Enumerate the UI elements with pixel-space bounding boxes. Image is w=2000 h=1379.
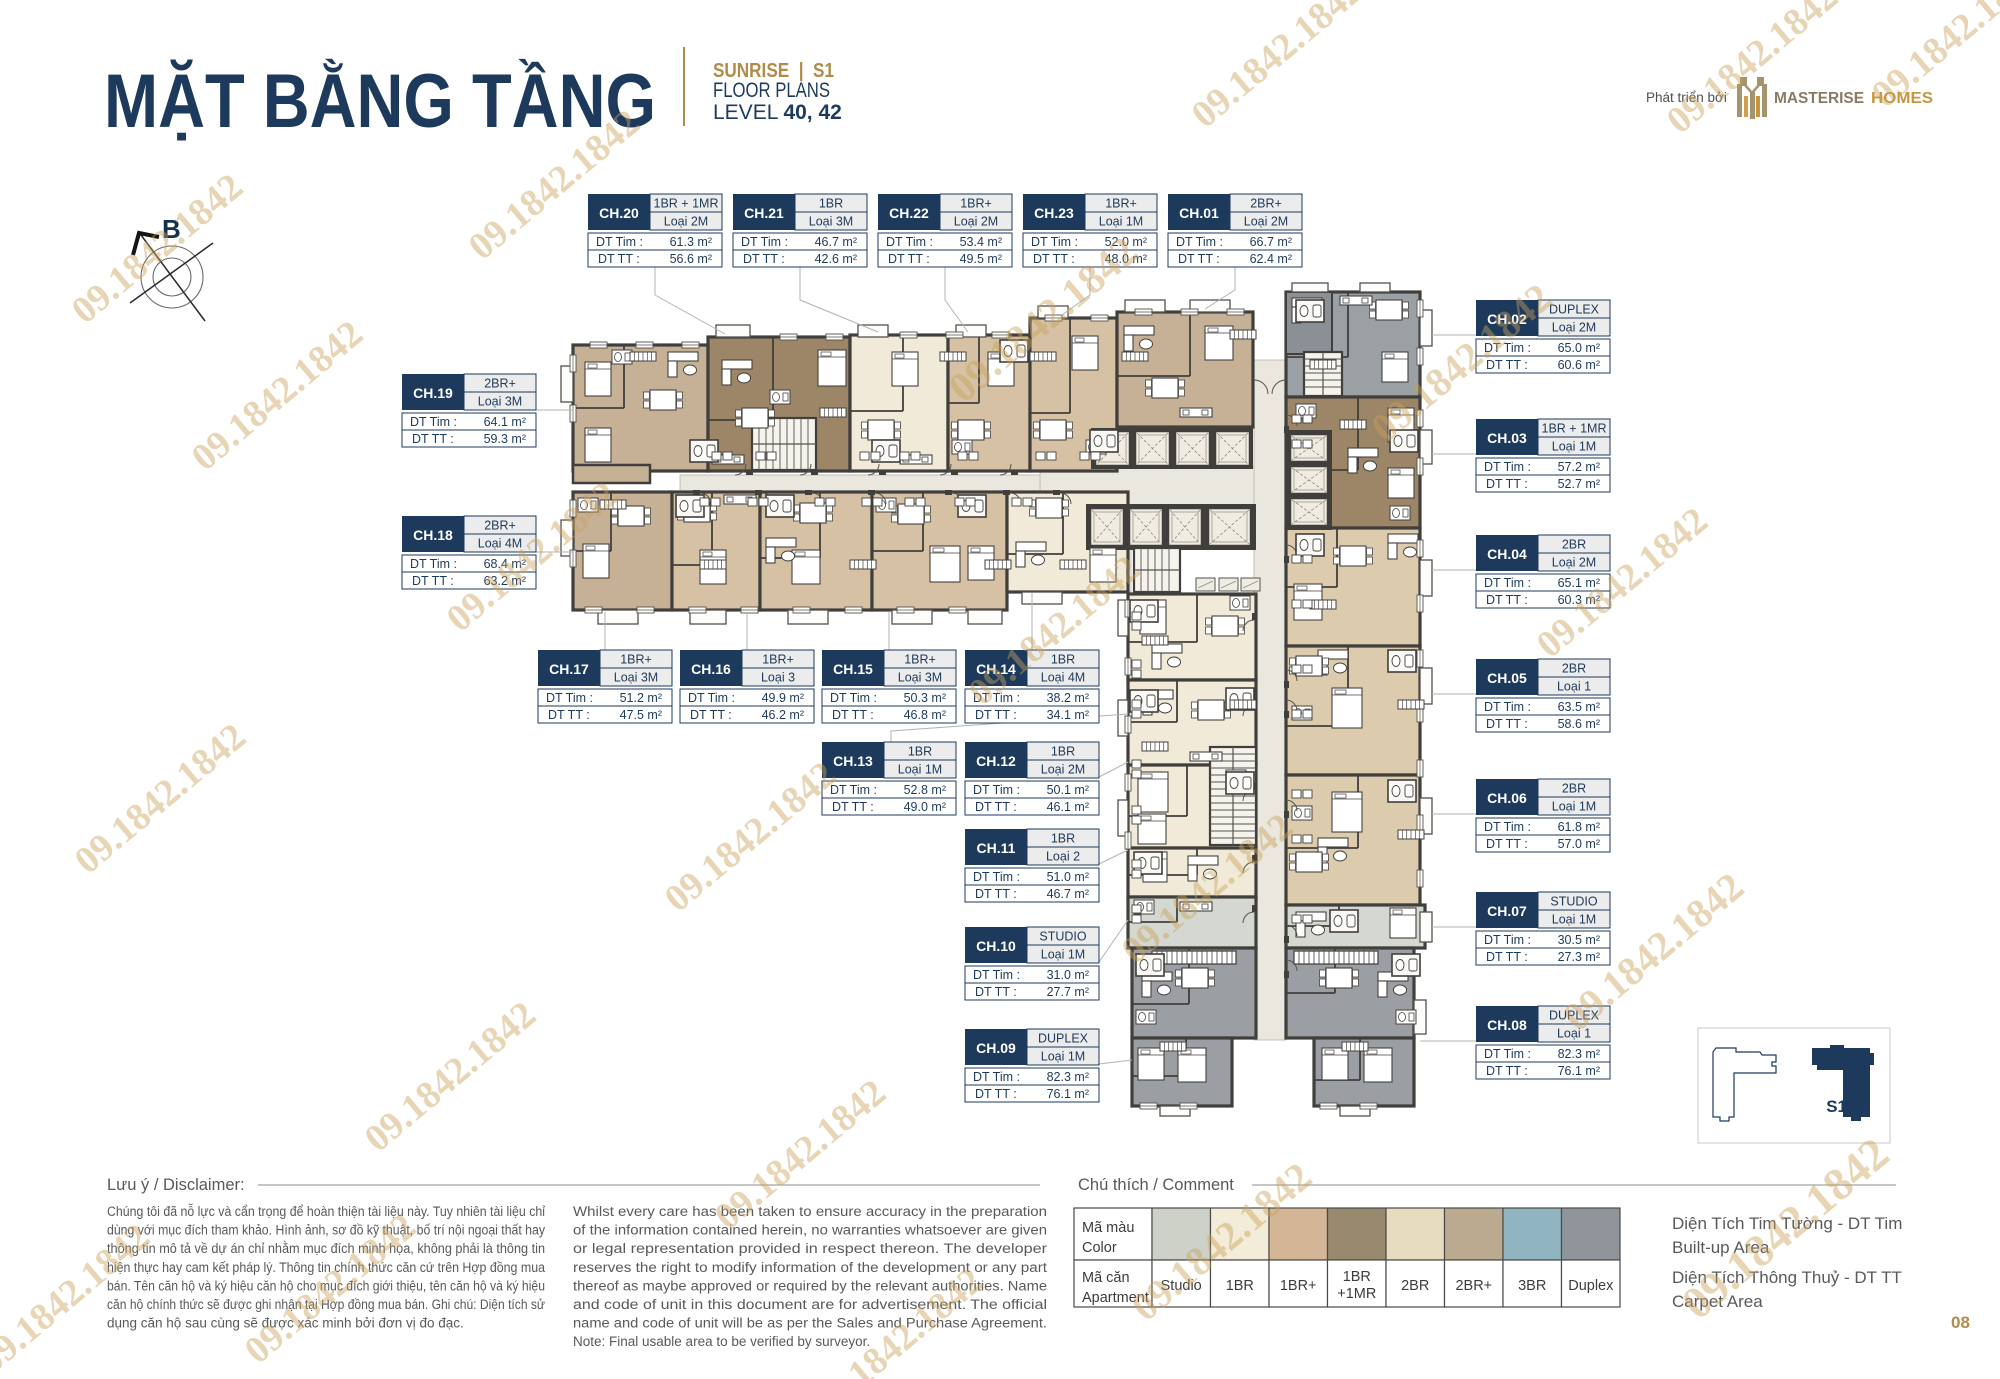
svg-text:Loại 3: Loại 3	[761, 671, 795, 685]
svg-text:Color: Color	[1082, 1240, 1117, 1256]
svg-text:CH.21: CH.21	[744, 205, 784, 221]
svg-text:CH.13: CH.13	[833, 753, 873, 769]
svg-text:66.7 m²: 66.7 m²	[1250, 235, 1292, 249]
svg-text:46.2 m²: 46.2 m²	[762, 708, 804, 722]
svg-text:Loại 1M: Loại 1M	[898, 763, 942, 777]
svg-text:DT TT :: DT TT :	[1486, 837, 1528, 851]
svg-text:Loại 2M: Loại 2M	[954, 215, 998, 229]
svg-text:Loại 3M: Loại 3M	[898, 671, 942, 685]
svg-text:STUDIO: STUDIO	[1550, 895, 1598, 909]
svg-text:Loại 2: Loại 2	[1046, 850, 1080, 864]
svg-text:CH.03: CH.03	[1487, 430, 1527, 446]
svg-text:2BR+: 2BR+	[484, 519, 516, 533]
svg-text:CH.12: CH.12	[976, 753, 1016, 769]
svg-text:61.3 m²: 61.3 m²	[670, 235, 712, 249]
svg-text:31.0 m²: 31.0 m²	[1047, 968, 1089, 982]
svg-text:DT TT :: DT TT :	[832, 800, 874, 814]
svg-text:DT Tim :: DT Tim :	[1484, 460, 1531, 474]
svg-text:DT Tim :: DT Tim :	[1176, 235, 1223, 249]
svg-text:DT TT :: DT TT :	[412, 432, 454, 446]
svg-text:Chúng tôi đã nỗ lực và cẩn trọ: Chúng tôi đã nỗ lực và cẩn trọng để hoàn…	[107, 1204, 545, 1219]
svg-text:Loại 2M: Loại 2M	[1552, 556, 1596, 570]
svg-text:Loại 1M: Loại 1M	[1099, 215, 1143, 229]
svg-text:1BR+: 1BR+	[620, 653, 652, 667]
svg-text:DT TT :: DT TT :	[1486, 1064, 1528, 1078]
svg-text:64.1 m²: 64.1 m²	[484, 415, 526, 429]
svg-text:63.5 m²: 63.5 m²	[1558, 700, 1600, 714]
svg-text:Loại 2M: Loại 2M	[1552, 321, 1596, 335]
svg-text:DT TT :: DT TT :	[1486, 477, 1528, 491]
svg-text:CH.17: CH.17	[549, 661, 589, 677]
svg-text:46.7 m²: 46.7 m²	[815, 235, 857, 249]
svg-text:name and code of unit will be: name and code of unit will be as per the…	[573, 1316, 1047, 1331]
svg-text:08: 08	[1951, 1313, 1970, 1332]
svg-text:DT TT :: DT TT :	[888, 252, 930, 266]
svg-text:DT TT :: DT TT :	[1486, 717, 1528, 731]
svg-text:61.8 m²: 61.8 m²	[1558, 820, 1600, 834]
svg-text:Loại 1M: Loại 1M	[1041, 1050, 1085, 1064]
svg-text:1BR+: 1BR+	[904, 653, 936, 667]
svg-text:Loại 2M: Loại 2M	[1244, 215, 1288, 229]
svg-text:49.9 m²: 49.9 m²	[762, 691, 804, 705]
svg-text:50.3 m²: 50.3 m²	[904, 691, 946, 705]
svg-text:DT TT :: DT TT :	[1033, 252, 1075, 266]
svg-text:STUDIO: STUDIO	[1039, 930, 1087, 944]
svg-text:46.8 m²: 46.8 m²	[904, 708, 946, 722]
svg-text:DT TT :: DT TT :	[690, 708, 732, 722]
svg-text:dùng với mục đích tham khảo. H: dùng với mục đích tham khảo. Hình ảnh, s…	[107, 1223, 545, 1238]
svg-text:DT TT :: DT TT :	[975, 985, 1017, 999]
svg-text:CH.16: CH.16	[691, 661, 731, 677]
svg-text:DT TT :: DT TT :	[975, 708, 1017, 722]
svg-text:CH.09: CH.09	[976, 1040, 1016, 1056]
svg-text:Duplex: Duplex	[1568, 1278, 1614, 1294]
svg-text:3BR: 3BR	[1518, 1278, 1546, 1294]
svg-text:51.0 m²: 51.0 m²	[1047, 870, 1089, 884]
svg-text:DT Tim :: DT Tim :	[830, 691, 877, 705]
svg-text:CH.08: CH.08	[1487, 1017, 1527, 1033]
svg-text:DUPLEX: DUPLEX	[1038, 1032, 1089, 1046]
svg-text:MẶT BẰNG TẦNG: MẶT BẰNG TẦNG	[104, 59, 656, 144]
svg-text:+1MR: +1MR	[1337, 1286, 1376, 1302]
svg-text:DT Tim :: DT Tim :	[1031, 235, 1078, 249]
svg-text:DT Tim :: DT Tim :	[886, 235, 933, 249]
svg-text:CH.15: CH.15	[833, 661, 873, 677]
svg-text:65.0 m²: 65.0 m²	[1558, 341, 1600, 355]
svg-text:DT Tim :: DT Tim :	[1484, 576, 1531, 590]
svg-text:Loại 1M: Loại 1M	[1552, 913, 1596, 927]
svg-text:Note: Final usable area to be: Note: Final usable area to be verified b…	[573, 1334, 870, 1349]
svg-text:DT TT :: DT TT :	[975, 887, 1017, 901]
svg-text:2BR+: 2BR+	[484, 377, 516, 391]
svg-text:DT Tim :: DT Tim :	[1484, 933, 1531, 947]
svg-text:DT TT :: DT TT :	[1178, 252, 1220, 266]
svg-text:DT TT :: DT TT :	[412, 574, 454, 588]
svg-text:Loại 1: Loại 1	[1557, 680, 1591, 694]
svg-text:62.4 m²: 62.4 m²	[1250, 252, 1292, 266]
svg-text:Loại 3M: Loại 3M	[614, 671, 658, 685]
svg-text:DT TT :: DT TT :	[832, 708, 874, 722]
svg-text:27.7 m²: 27.7 m²	[1047, 985, 1089, 999]
svg-text:38.2 m²: 38.2 m²	[1047, 691, 1089, 705]
svg-text:DT Tim :: DT Tim :	[546, 691, 593, 705]
svg-text:DT TT :: DT TT :	[548, 708, 590, 722]
svg-text:CH.23: CH.23	[1034, 205, 1074, 221]
svg-text:DT Tim :: DT Tim :	[410, 415, 457, 429]
svg-text:reserves the right to modify i: reserves the right to modify information…	[573, 1260, 1047, 1275]
svg-text:Whilst every care has been tak: Whilst every care has been taken to ensu…	[573, 1204, 1047, 1219]
svg-text:DT Tim :: DT Tim :	[596, 235, 643, 249]
svg-text:Loại 2M: Loại 2M	[664, 215, 708, 229]
svg-text:Lưu ý / Disclaimer:: Lưu ý / Disclaimer:	[107, 1176, 245, 1194]
svg-text:DT Tim :: DT Tim :	[973, 968, 1020, 982]
svg-text:LEVEL 40, 42: LEVEL 40, 42	[713, 101, 842, 124]
svg-text:1BR+: 1BR+	[1280, 1278, 1317, 1294]
svg-text:DT Tim :: DT Tim :	[1484, 820, 1531, 834]
svg-text:DT TT :: DT TT :	[975, 1087, 1017, 1101]
svg-text:DT TT :: DT TT :	[1486, 950, 1528, 964]
svg-text:CH.01: CH.01	[1179, 205, 1219, 221]
svg-text:51.2 m²: 51.2 m²	[620, 691, 662, 705]
svg-text:FLOOR PLANS: FLOOR PLANS	[713, 79, 830, 102]
svg-text:1BR: 1BR	[819, 197, 843, 211]
svg-text:DT TT :: DT TT :	[598, 252, 640, 266]
svg-text:76.1 m²: 76.1 m²	[1558, 1064, 1600, 1078]
svg-text:1BR: 1BR	[1343, 1269, 1371, 1285]
svg-text:53.4 m²: 53.4 m²	[960, 235, 1002, 249]
svg-text:CH.22: CH.22	[889, 205, 929, 221]
svg-text:Loại 1M: Loại 1M	[1041, 948, 1085, 962]
svg-text:58.6 m²: 58.6 m²	[1558, 717, 1600, 731]
svg-text:1BR: 1BR	[908, 745, 932, 759]
svg-text:Loại 1M: Loại 1M	[1552, 800, 1596, 814]
svg-text:DT TT :: DT TT :	[975, 800, 1017, 814]
svg-text:52.8 m²: 52.8 m²	[904, 783, 946, 797]
svg-text:49.0 m²: 49.0 m²	[904, 800, 946, 814]
svg-text:DT Tim :: DT Tim :	[741, 235, 788, 249]
svg-text:Loại 3M: Loại 3M	[809, 215, 853, 229]
svg-text:DT Tim :: DT Tim :	[973, 783, 1020, 797]
svg-text:1BR+: 1BR+	[960, 197, 992, 211]
svg-text:Mã căn: Mã căn	[1082, 1270, 1130, 1286]
svg-text:27.3 m²: 27.3 m²	[1558, 950, 1600, 964]
svg-text:59.3 m²: 59.3 m²	[484, 432, 526, 446]
svg-text:2BR+: 2BR+	[1455, 1278, 1492, 1294]
svg-text:CH.10: CH.10	[976, 938, 1016, 954]
svg-text:CH.18: CH.18	[413, 527, 453, 543]
svg-text:2BR: 2BR	[1562, 538, 1586, 552]
svg-text:of the information contained h: of the information contained herein, no …	[573, 1223, 1047, 1238]
svg-text:DT Tim :: DT Tim :	[973, 870, 1020, 884]
svg-text:Loại 4M: Loại 4M	[1041, 671, 1085, 685]
svg-text:30.5 m²: 30.5 m²	[1558, 933, 1600, 947]
svg-text:DT Tim :: DT Tim :	[410, 557, 457, 571]
svg-text:2BR: 2BR	[1562, 662, 1586, 676]
svg-text:MASTERISE: MASTERISE	[1774, 90, 1864, 107]
svg-text:82.3 m²: 82.3 m²	[1047, 1070, 1089, 1084]
svg-text:42.6 m²: 42.6 m²	[815, 252, 857, 266]
svg-text:thông tin mô tả về dự án chỉ n: thông tin mô tả về dự án chỉ nhằm mục đí…	[107, 1241, 545, 1256]
svg-text:46.7 m²: 46.7 m²	[1047, 887, 1089, 901]
svg-text:56.6 m²: 56.6 m²	[670, 252, 712, 266]
svg-text:1BR+: 1BR+	[762, 653, 794, 667]
svg-text:CH.05: CH.05	[1487, 670, 1527, 686]
svg-text:1BR: 1BR	[1051, 832, 1075, 846]
svg-text:2BR: 2BR	[1562, 782, 1586, 796]
svg-text:1BR: 1BR	[1051, 745, 1075, 759]
svg-text:DT TT :: DT TT :	[743, 252, 785, 266]
svg-text:CH.11: CH.11	[977, 840, 1016, 856]
svg-text:Chú thích / Comment: Chú thích / Comment	[1078, 1176, 1234, 1194]
svg-text:DT Tim :: DT Tim :	[973, 1070, 1020, 1084]
svg-text:46.1 m²: 46.1 m²	[1047, 800, 1089, 814]
svg-text:1BR + 1MR: 1BR + 1MR	[654, 197, 719, 211]
svg-text:57.0 m²: 57.0 m²	[1558, 837, 1600, 851]
svg-text:Loại 2M: Loại 2M	[1041, 763, 1085, 777]
svg-text:76.1 m²: 76.1 m²	[1047, 1087, 1089, 1101]
svg-text:DT Tim :: DT Tim :	[688, 691, 735, 705]
svg-text:CH.20: CH.20	[599, 205, 639, 221]
svg-text:DT Tim :: DT Tim :	[1484, 1047, 1531, 1061]
svg-text:1BR + 1MR: 1BR + 1MR	[1542, 422, 1607, 436]
svg-text:52.7 m²: 52.7 m²	[1558, 477, 1600, 491]
svg-text:60.6 m²: 60.6 m²	[1558, 358, 1600, 372]
svg-text:Mã màu: Mã màu	[1082, 1220, 1134, 1236]
svg-text:1BR+: 1BR+	[1105, 197, 1137, 211]
svg-text:Loại 1M: Loại 1M	[1552, 440, 1596, 454]
svg-text:1BR: 1BR	[1226, 1278, 1254, 1294]
svg-text:2BR+: 2BR+	[1250, 197, 1282, 211]
svg-text:CH.06: CH.06	[1487, 790, 1527, 806]
svg-text:DT TT :: DT TT :	[1486, 593, 1528, 607]
svg-text:Loại 3M: Loại 3M	[478, 395, 522, 409]
svg-text:S1: S1	[1826, 1097, 1847, 1116]
svg-text:57.2 m²: 57.2 m²	[1558, 460, 1600, 474]
svg-text:CH.19: CH.19	[413, 385, 453, 401]
svg-text:47.5 m²: 47.5 m²	[620, 708, 662, 722]
svg-text:or legal representation provid: or legal representation provided in resp…	[573, 1241, 1048, 1256]
svg-text:49.5 m²: 49.5 m²	[960, 252, 1002, 266]
svg-text:DT Tim :: DT Tim :	[1484, 700, 1531, 714]
svg-text:CH.07: CH.07	[1487, 903, 1527, 919]
svg-text:CH.04: CH.04	[1487, 546, 1527, 562]
svg-text:34.1 m²: 34.1 m²	[1047, 708, 1089, 722]
svg-text:2BR: 2BR	[1401, 1278, 1429, 1294]
svg-text:50.1 m²: 50.1 m²	[1047, 783, 1089, 797]
svg-text:82.3 m²: 82.3 m²	[1558, 1047, 1600, 1061]
